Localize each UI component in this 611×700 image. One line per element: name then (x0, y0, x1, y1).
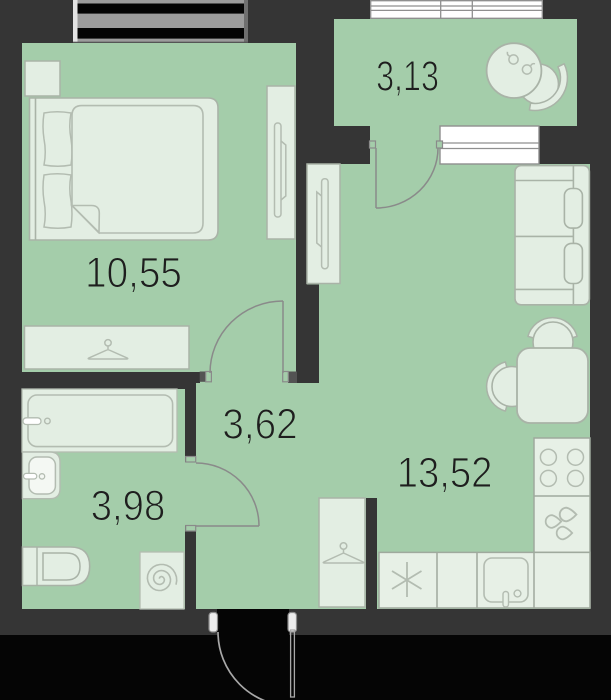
svg-text:3,62: 3,62 (222, 400, 297, 448)
svg-text:3,98: 3,98 (91, 481, 165, 529)
svg-text:13,52: 13,52 (397, 448, 493, 496)
svg-text:3,13: 3,13 (376, 52, 439, 99)
svg-text:10,55: 10,55 (85, 248, 182, 296)
